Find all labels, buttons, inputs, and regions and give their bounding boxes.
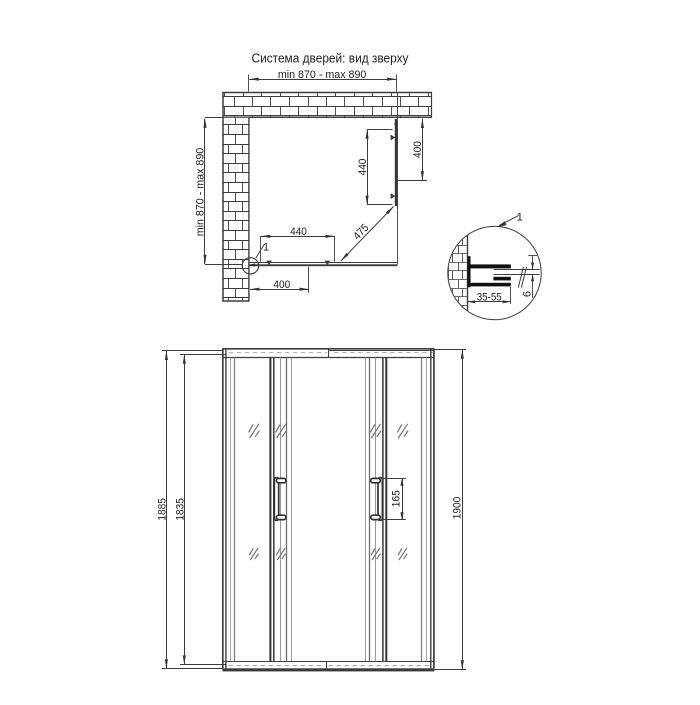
svg-text:1835: 1835 <box>174 498 186 521</box>
svg-text:1900: 1900 <box>451 497 463 520</box>
svg-text:165: 165 <box>390 490 402 507</box>
svg-text:440: 440 <box>357 159 369 176</box>
svg-text:440: 440 <box>290 226 307 238</box>
svg-text:6: 6 <box>522 291 534 297</box>
svg-text:1: 1 <box>263 241 269 253</box>
svg-text:Система дверей: вид зверху: Система дверей: вид зверху <box>252 51 410 65</box>
svg-text:1885: 1885 <box>157 498 169 521</box>
svg-text:min 870 - max 890: min 870 - max 890 <box>194 148 206 237</box>
svg-text:400: 400 <box>412 141 424 158</box>
svg-text:1: 1 <box>517 211 523 223</box>
svg-text:35-55: 35-55 <box>477 291 502 303</box>
svg-text:475: 475 <box>351 222 371 242</box>
svg-text:400: 400 <box>273 279 290 291</box>
